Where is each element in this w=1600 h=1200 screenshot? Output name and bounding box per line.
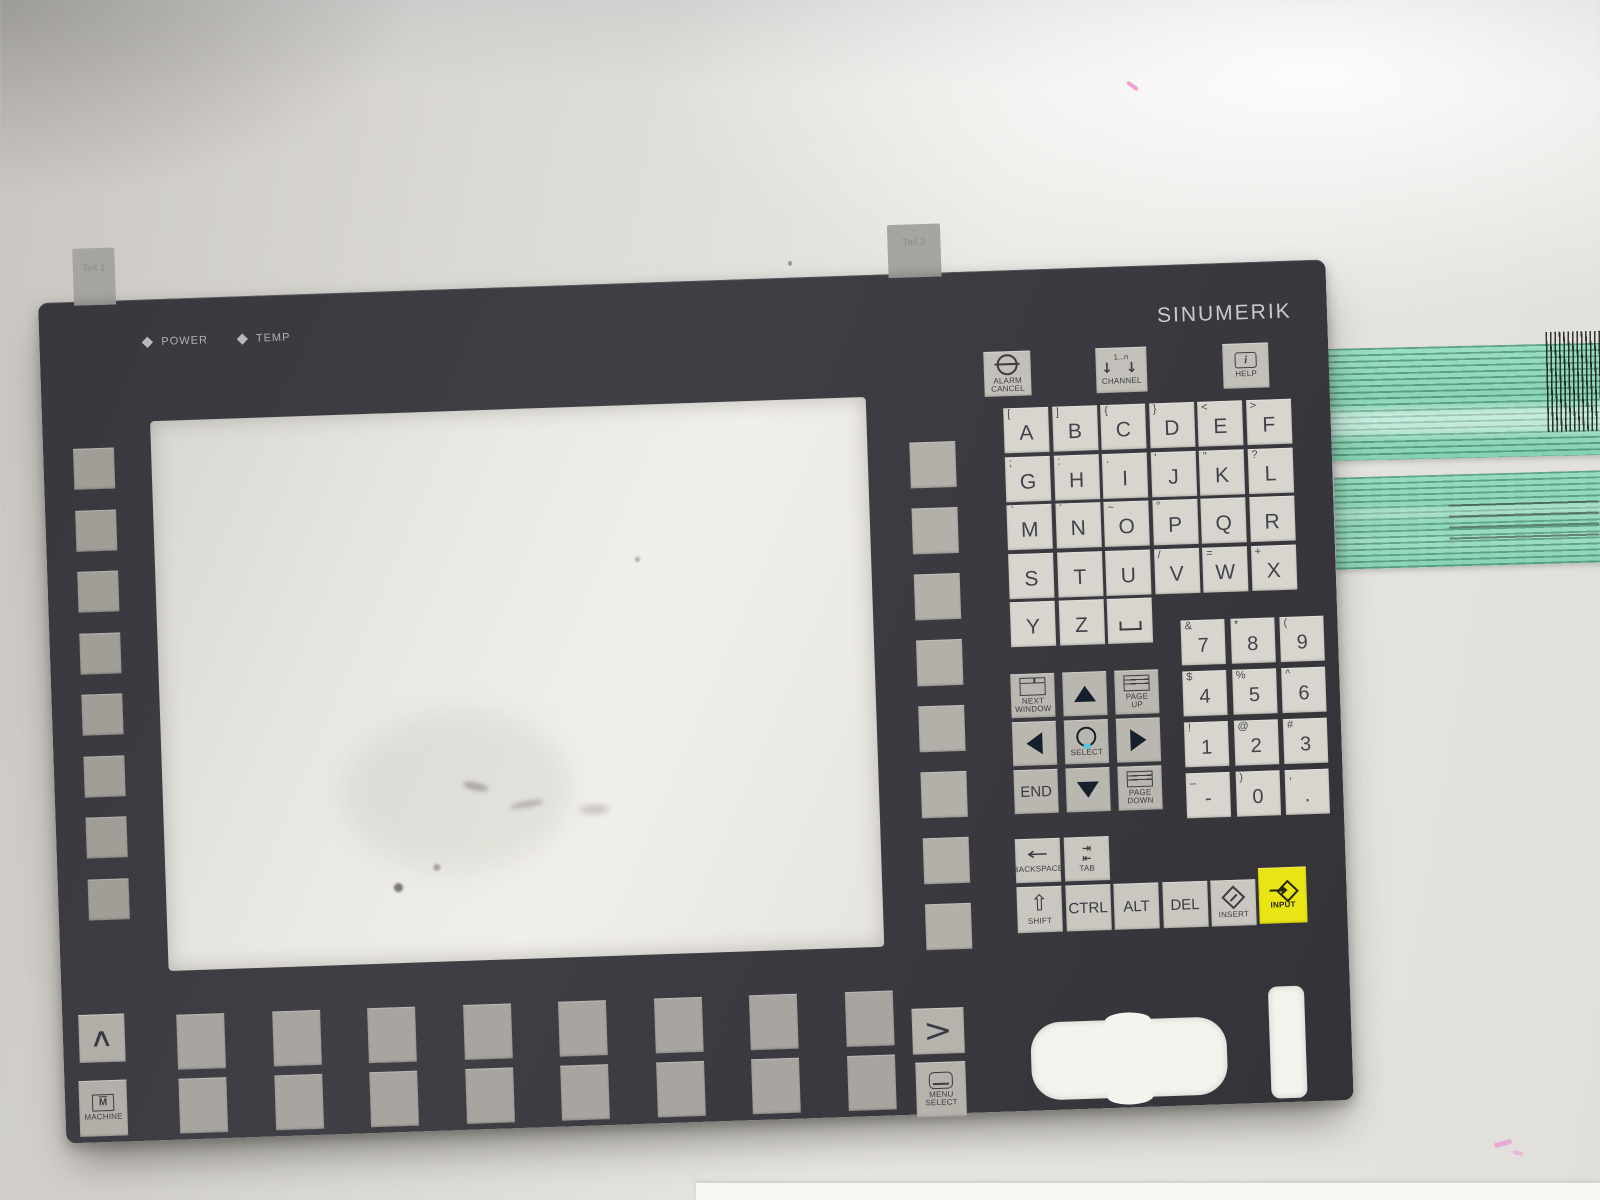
shift-symbol: ] [1056, 407, 1060, 420]
screen-smudge [635, 557, 640, 562]
key-9[interactable]: (9 [1279, 616, 1324, 662]
key-letter: H [1069, 469, 1085, 491]
softkey-right-1[interactable] [909, 441, 957, 489]
key-letter: M [1021, 519, 1039, 541]
select-key[interactable]: SELECT [1064, 719, 1109, 764]
key-8[interactable]: *8 [1230, 617, 1275, 663]
key-I[interactable]: .I [1102, 452, 1148, 498]
softkey-right-5[interactable] [918, 705, 966, 753]
key-7[interactable]: &7 [1180, 619, 1225, 665]
key-0[interactable]: )0 [1235, 770, 1280, 816]
input-key[interactable]: INPUT [1258, 866, 1308, 924]
cursor-left-key[interactable] [1012, 721, 1057, 766]
key-letter: B [1068, 421, 1083, 442]
softkey-bottom-upper-7[interactable] [749, 994, 799, 1051]
key-letter: X [1266, 560, 1281, 581]
key-V[interactable]: /V [1153, 547, 1199, 593]
softkey-bottom-upper-8[interactable] [844, 990, 894, 1047]
right-softkey-column [909, 441, 972, 950]
temp-led-label: TEMP [256, 331, 291, 344]
chevron-up-icon: ∧ [89, 1025, 115, 1052]
key-letter: E [1213, 416, 1228, 437]
key-J[interactable]: 'J [1150, 450, 1196, 496]
alt-key[interactable]: ALT [1113, 882, 1160, 929]
input-key-label: INPUT [1270, 901, 1295, 910]
shift-symbol: + [1254, 545, 1261, 558]
key-E[interactable]: <E [1197, 400, 1243, 446]
no-entry-icon [996, 353, 1018, 375]
softkey-bottom-lower-2[interactable] [274, 1074, 324, 1131]
key-letter: D [1164, 417, 1180, 439]
cursor-navigation-cluster: NEXTWINDOWPAGEUPSELECTENDPAGEDOWN [1010, 669, 1163, 814]
softkey-left-7[interactable] [85, 816, 127, 858]
machine-key[interactable]: M MACHINE [78, 1079, 128, 1137]
shift-symbol: $ [1186, 671, 1193, 684]
key-letter: I [1122, 468, 1129, 489]
shift-symbol: , [1289, 770, 1293, 783]
shift-symbol: / [1157, 549, 1161, 562]
softkey-right-2[interactable] [911, 507, 959, 555]
key-letter: T [1073, 566, 1087, 587]
key-5[interactable]: %5 [1232, 668, 1277, 714]
alphabet-key-grid: [A]B{C}D<E>F;G:H.I'J"K?L`M´N~O°PQRSTU/V=… [1003, 399, 1298, 648]
cursor-right-key[interactable] [1116, 717, 1161, 762]
shift-symbol: ? [1251, 448, 1258, 461]
key-T[interactable]: T [1057, 551, 1103, 597]
key-letter: U [1120, 564, 1136, 586]
end-key[interactable]: END [1013, 769, 1058, 814]
cable-trace-marks [1449, 500, 1600, 542]
page-icon [1123, 674, 1150, 691]
pink-mark [1126, 81, 1139, 92]
softkey-right-4[interactable] [916, 639, 964, 687]
key-letter: G [1020, 471, 1037, 493]
shift-symbol: ^ [1285, 668, 1291, 681]
shift-symbol: _ [1190, 773, 1197, 786]
circle-icon [1076, 726, 1097, 747]
input-arrow-icon [1269, 880, 1297, 900]
softkey-bottom-lower-4[interactable] [465, 1067, 515, 1124]
left-triangle-icon [1026, 732, 1043, 755]
double-down-arrow-icon: ↓ ↓ [1101, 361, 1142, 376]
shift-symbol: : [1057, 455, 1061, 468]
key-letter: P [1168, 514, 1183, 535]
shift-symbol: ' [1154, 452, 1157, 465]
key-O[interactable]: ~O [1103, 501, 1149, 547]
key-W[interactable]: =W [1202, 546, 1248, 592]
softkey-right-6[interactable] [920, 771, 968, 819]
left-softkey-column [73, 448, 130, 921]
key-L[interactable]: ?L [1247, 447, 1293, 493]
softkey-bottom-lower-1[interactable] [178, 1077, 228, 1134]
key-.[interactable]: ,. [1285, 769, 1330, 815]
pink-mark [1513, 1150, 1524, 1156]
shift-symbol: . [1106, 453, 1110, 466]
key-letter: W [1215, 561, 1236, 583]
key-space[interactable] [1107, 597, 1153, 643]
key-K[interactable]: "K [1199, 449, 1245, 495]
shift-symbol: > [1249, 400, 1256, 413]
cable-contact-fingers [1545, 331, 1600, 432]
shift-key[interactable]: ⇧SHIFT [1016, 886, 1063, 933]
key-D[interactable]: }D [1149, 402, 1195, 448]
flex-ribbon-cable-bottom [1334, 470, 1600, 570]
shift-symbol: ~ [1107, 502, 1114, 515]
key-letter: Q [1215, 513, 1232, 535]
shift-symbol: { [1104, 405, 1108, 418]
key-3[interactable]: #3 [1283, 718, 1328, 764]
key-F[interactable]: >F [1245, 399, 1291, 445]
status-indicators: POWER TEMP [143, 331, 310, 349]
down-triangle-icon [1077, 781, 1100, 798]
cursor-up-key[interactable] [1062, 671, 1107, 716]
shift-symbol: ! [1188, 722, 1192, 735]
page-up-key[interactable]: PAGEUP [1114, 669, 1159, 714]
key-digit: 1 [1201, 737, 1213, 758]
insert-key[interactable]: INSERT [1210, 879, 1257, 926]
shift-symbol: } [1153, 403, 1157, 416]
shift-symbol: & [1184, 620, 1192, 633]
table-edge-highlight [696, 1183, 1600, 1200]
shift-symbol: @ [1237, 720, 1249, 733]
power-led-label: POWER [161, 334, 208, 348]
shift-symbol: < [1201, 401, 1208, 414]
key-digit: 6 [1298, 683, 1310, 704]
machine-key-label: MACHINE [84, 1113, 123, 1123]
key-X[interactable]: +X [1250, 544, 1296, 590]
screen-smudge [579, 804, 609, 815]
key-A[interactable]: [A [1003, 407, 1049, 453]
softkey-right-3[interactable] [914, 573, 962, 621]
connector-tab-1-label: Teil 1 [82, 263, 106, 275]
shift-symbol: ) [1239, 771, 1243, 784]
shift-symbol: ´ [1059, 503, 1063, 516]
brand-logo: SINUMERIK [1157, 300, 1292, 329]
key-digit: 9 [1296, 632, 1308, 653]
key-letter: C [1115, 419, 1131, 441]
power-led-icon [142, 337, 153, 348]
next-window-key[interactable]: NEXTWINDOW [1010, 673, 1055, 718]
key-letter: Y [1026, 616, 1041, 637]
tab-key[interactable]: ⇥⇤TAB [1064, 836, 1110, 881]
key-digit: 8 [1247, 633, 1259, 654]
connector-tab-2: Teil 2 [887, 223, 942, 278]
space-bracket-icon [1119, 621, 1141, 631]
window-icon [1019, 677, 1046, 696]
softkey-right-7[interactable] [923, 837, 971, 885]
pink-mark [1494, 1139, 1513, 1148]
key-S[interactable]: S [1008, 552, 1054, 598]
mounting-cutout [1030, 1016, 1229, 1101]
softkey-left-8[interactable] [88, 878, 130, 920]
softkey-left-4[interactable] [79, 632, 121, 674]
softkey-bottom-upper-5[interactable] [558, 1000, 608, 1057]
system-key-row: ALARMCANCEL1...n↓ ↓CHANNELiHELP [983, 342, 1274, 398]
key-letter: V [1169, 563, 1184, 584]
alarm-cancel-key[interactable]: ALARMCANCEL [983, 350, 1031, 397]
key-4[interactable]: $4 [1182, 670, 1227, 716]
softkey-bottom-upper-1[interactable] [176, 1013, 226, 1070]
shift-symbol: # [1287, 719, 1294, 732]
shift-arrow-icon: ⇧ [1030, 893, 1049, 916]
key-C[interactable]: {C [1100, 404, 1146, 450]
key-digit: 0 [1252, 786, 1264, 807]
insert-diamond-icon [1221, 886, 1245, 910]
key-1[interactable]: !1 [1184, 721, 1229, 767]
display-window [150, 397, 884, 971]
backspace-key[interactable]: ←BACKSPACE [1015, 838, 1061, 883]
chevron-right-icon: > [923, 1014, 953, 1047]
softkey-bottom-lower-7[interactable] [751, 1058, 801, 1115]
key-letter: Z [1075, 615, 1089, 636]
key-R[interactable]: R [1249, 496, 1295, 542]
softkey-bottom-lower-3[interactable] [369, 1071, 419, 1128]
softkey-bottom-lower-8[interactable] [846, 1054, 896, 1111]
connector-tab-2-label: Teil 2 [902, 237, 926, 249]
key--[interactable]: _- [1186, 772, 1231, 818]
numeric-keypad: &7*8(9$4%5^6!1@2#3_-)0,. [1180, 616, 1330, 819]
shift-symbol: % [1236, 669, 1246, 682]
key-letter: J [1168, 466, 1179, 487]
shift-symbol: * [1234, 619, 1239, 632]
menu-extend-key[interactable]: > [911, 1007, 965, 1055]
screen-smudge [340, 707, 575, 875]
screen-smudge [394, 883, 403, 892]
key-digit: - [1205, 788, 1212, 809]
key-U[interactable]: U [1105, 549, 1151, 595]
membrane-keypad-panel: Teil 1 Teil 2 POWER TEMP SINUMERIK ∧ M M… [38, 259, 1354, 1143]
key-6[interactable]: ^6 [1281, 667, 1326, 713]
key-digit: 3 [1300, 734, 1312, 755]
key-letter: F [1262, 414, 1276, 435]
shift-symbol: ( [1283, 617, 1287, 630]
key-letter: A [1019, 422, 1034, 443]
key-Z[interactable]: Z [1058, 599, 1104, 645]
key-digit: 2 [1250, 735, 1262, 756]
softkey-bottom-upper-2[interactable] [272, 1010, 322, 1067]
shift-symbol: [ [1007, 408, 1011, 421]
shift-symbol: ` [1010, 505, 1014, 518]
edit-key-row-1: ←BACKSPACE⇥⇤TAB [1015, 836, 1110, 883]
key-digit: 4 [1199, 686, 1211, 707]
page-icon [1126, 770, 1153, 787]
shift-symbol: " [1203, 450, 1207, 463]
key-letter: L [1264, 463, 1276, 484]
key-letter: O [1118, 516, 1135, 538]
key-G[interactable]: ;G [1005, 455, 1051, 501]
key-letter: R [1264, 511, 1280, 533]
key-letter: N [1070, 518, 1086, 540]
key-B[interactable]: ]B [1052, 405, 1098, 451]
key-H[interactable]: :H [1053, 454, 1099, 500]
softkey-left-1[interactable] [73, 448, 115, 490]
cable-slot-cutout [1268, 986, 1308, 1099]
backspace-arrow-icon: ← [1027, 846, 1049, 864]
info-icon: i [1234, 352, 1257, 369]
shift-symbol: ° [1156, 500, 1161, 513]
bottom-softkey-row-2 [178, 1054, 896, 1133]
tab-arrows-icon: ⇥⇤ [1082, 844, 1092, 863]
key-Y[interactable]: Y [1010, 601, 1056, 647]
cursor-down-key[interactable] [1065, 767, 1110, 812]
page-down-key[interactable]: PAGEDOWN [1117, 765, 1162, 810]
flex-ribbon-cable-top [1314, 343, 1600, 462]
menu-select-key[interactable]: MENU SELECT [915, 1061, 967, 1118]
del-key[interactable]: DEL [1162, 881, 1209, 928]
edit-key-row-2: ⇧SHIFTCTRLALTDELINSERT [1016, 879, 1256, 933]
key-N[interactable]: ´N [1055, 502, 1101, 548]
key-P[interactable]: °P [1152, 499, 1198, 545]
help-key[interactable]: iHELP [1222, 342, 1269, 389]
menu-window-icon [929, 1071, 954, 1089]
softkey-right-8[interactable] [925, 903, 973, 951]
key-2[interactable]: @2 [1233, 719, 1278, 765]
shift-symbol: ; [1009, 457, 1013, 470]
key-letter: S [1024, 568, 1039, 589]
softkey-left-3[interactable] [77, 570, 119, 612]
shift-symbol: = [1206, 547, 1213, 560]
connector-tab-1: Teil 1 [72, 247, 116, 305]
key-Q[interactable]: Q [1200, 497, 1246, 543]
key-digit: 5 [1249, 684, 1261, 705]
softkey-left-5[interactable] [81, 693, 123, 735]
softkey-bottom-lower-6[interactable] [656, 1061, 706, 1118]
temp-led-icon [236, 333, 247, 344]
ctrl-key[interactable]: CTRL [1065, 884, 1112, 931]
softkey-left-2[interactable] [75, 509, 117, 551]
menu-select-label: MENU SELECT [925, 1090, 958, 1108]
softkey-bottom-upper-4[interactable] [463, 1003, 513, 1060]
machine-m-icon: M [92, 1094, 115, 1112]
recall-key[interactable]: ∧ [78, 1013, 126, 1063]
right-triangle-icon [1130, 729, 1147, 752]
up-triangle-icon [1074, 685, 1097, 702]
channel-key[interactable]: 1...n↓ ↓CHANNEL [1095, 347, 1147, 394]
softkey-left-6[interactable] [83, 755, 125, 797]
key-M[interactable]: `M [1006, 504, 1052, 550]
softkey-bottom-upper-3[interactable] [367, 1007, 417, 1064]
softkey-bottom-upper-6[interactable] [653, 997, 703, 1054]
key-digit: 7 [1197, 635, 1209, 656]
softkey-bottom-lower-5[interactable] [560, 1064, 610, 1121]
key-digit: . [1304, 785, 1310, 806]
key-letter: K [1215, 464, 1230, 485]
dust-speck [788, 261, 792, 266]
